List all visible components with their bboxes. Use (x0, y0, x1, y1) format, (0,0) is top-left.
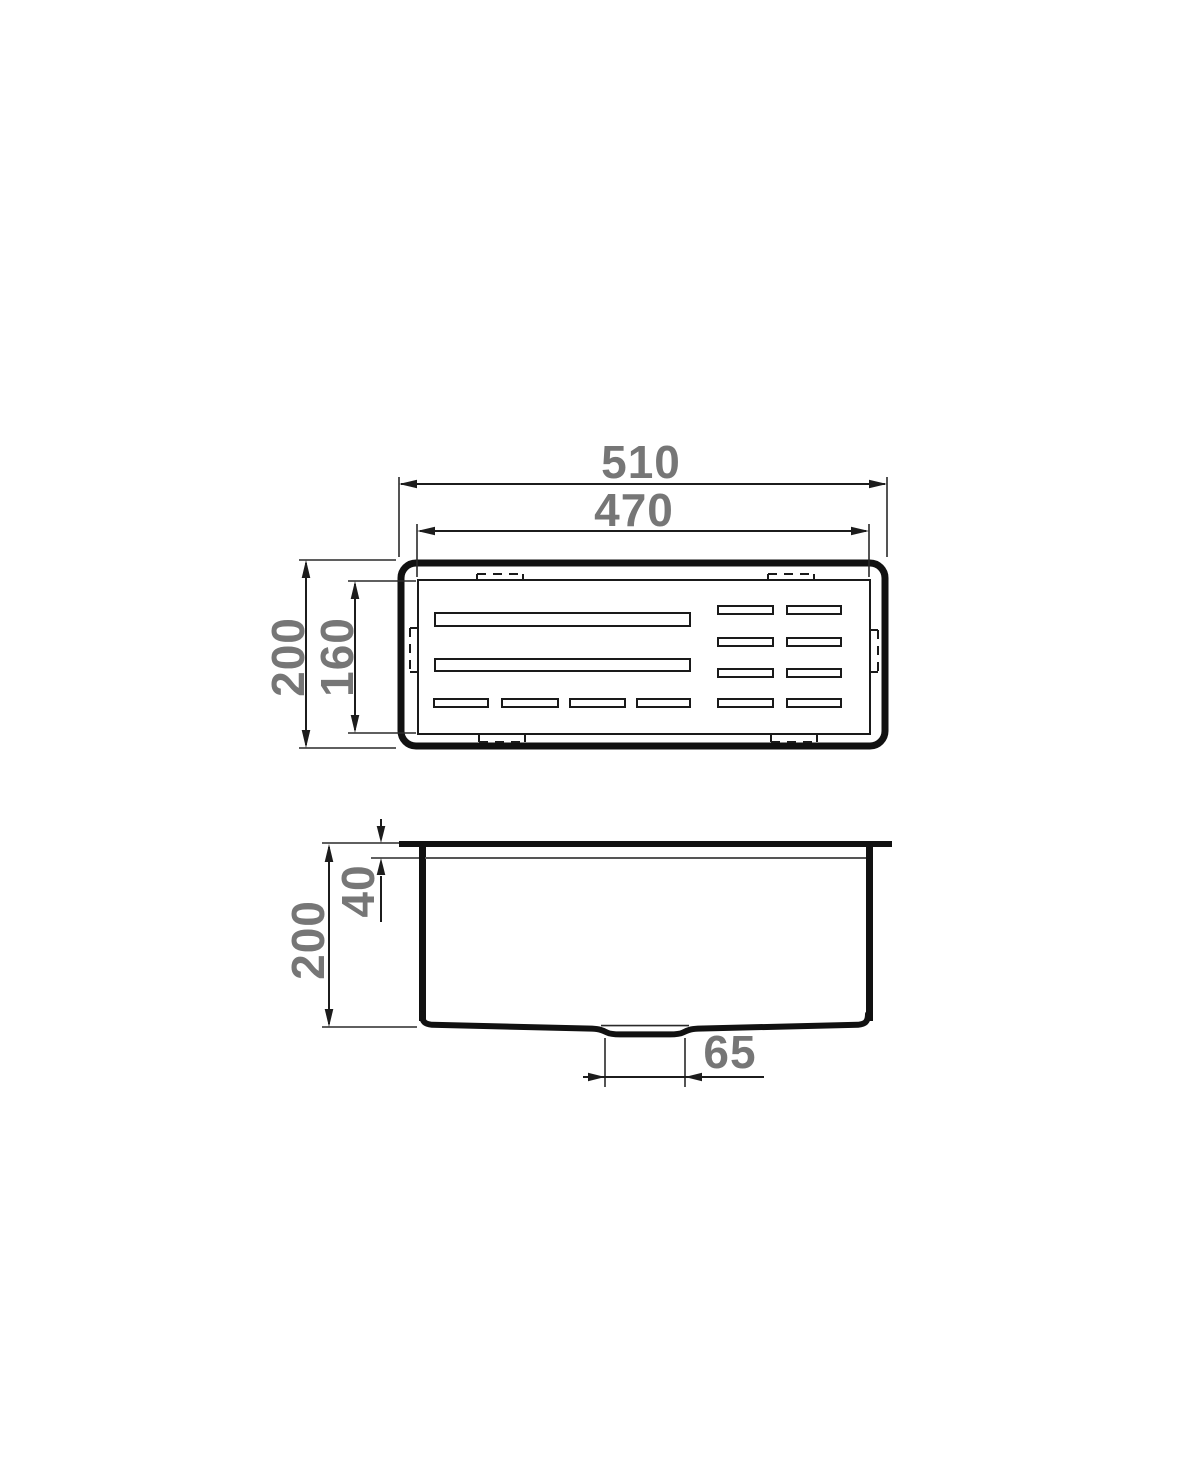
drain-slot-short (787, 669, 841, 677)
drain-slot-short (570, 699, 625, 707)
top-view: 510 470 200 160 (262, 436, 887, 748)
arrowhead (399, 480, 417, 489)
top-view-inner-outline (418, 580, 870, 734)
dimension-label-drain-width: 65 (703, 1026, 756, 1078)
arrowhead (302, 730, 311, 748)
arrowhead (325, 844, 334, 862)
arrowhead (302, 560, 311, 578)
dimension-label-width-outer: 510 (601, 436, 681, 488)
drain-slot-short (787, 638, 841, 646)
dimension-depth-top: 40 (332, 819, 419, 922)
arrowhead (588, 1073, 605, 1082)
side-view-left-wall (419, 845, 426, 1021)
drain-slot-short (718, 669, 773, 677)
drain-slots (434, 606, 841, 707)
dimension-label-height-total: 200 (282, 900, 334, 980)
drain-slot-long (435, 659, 690, 671)
technical-drawing-page: 510 470 200 160 (0, 0, 1200, 1482)
drain-slot-short (787, 606, 841, 614)
dimension-label-depth-inner: 160 (311, 617, 363, 697)
drain-slot-short (434, 699, 488, 707)
drain-slot-short (718, 699, 773, 707)
top-view-outer-outline (401, 563, 885, 746)
arrowhead (851, 527, 869, 536)
dimension-label-depth-outer: 200 (262, 617, 314, 697)
arrowhead (351, 715, 360, 733)
arrowhead (869, 480, 887, 489)
dimension-label-depth-top: 40 (332, 864, 384, 917)
drain-slot-short (718, 606, 773, 614)
side-view-rim (399, 841, 892, 847)
drain-slot-long (435, 613, 690, 626)
side-view: 200 40 65 (282, 819, 892, 1087)
dimension-drawing: 510 470 200 160 (0, 0, 1200, 1482)
arrowhead (351, 581, 360, 599)
arrowhead (377, 826, 386, 843)
drain-slot-short (637, 699, 690, 707)
arrowhead (417, 527, 435, 536)
arrowhead (325, 1009, 334, 1027)
drain-slot-short (502, 699, 558, 707)
drain-slot-short (787, 699, 841, 707)
side-view-bottom (422, 1014, 868, 1034)
arrowhead (685, 1073, 702, 1082)
drain-slot-short (718, 638, 773, 646)
side-view-right-wall (866, 845, 873, 1021)
dimension-label-width-inner: 470 (594, 484, 674, 536)
